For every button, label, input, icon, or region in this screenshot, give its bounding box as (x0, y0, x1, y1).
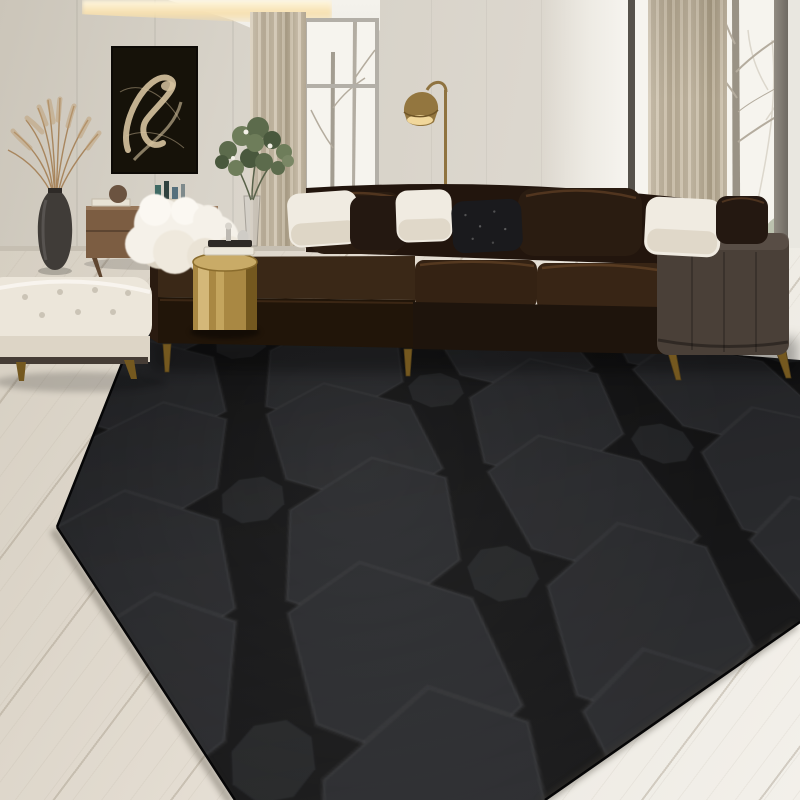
black-textured-pillow (451, 198, 524, 254)
living-room-photo (0, 0, 800, 800)
leather-pillow (716, 196, 768, 244)
sofa-seat-cushion (537, 263, 663, 311)
white-pillow (395, 189, 453, 243)
white-pillow (286, 190, 360, 249)
white-pillow (643, 196, 722, 258)
pampas-vase (8, 98, 99, 275)
sofa-base-front (413, 302, 662, 354)
floor-lamp (404, 82, 447, 200)
sofa-seat-cushion (415, 260, 537, 308)
table-top (193, 253, 257, 271)
abstract-artwork (112, 47, 197, 173)
furniture-layer (0, 0, 800, 800)
ottoman (0, 277, 165, 392)
rug-edge (53, 318, 800, 800)
